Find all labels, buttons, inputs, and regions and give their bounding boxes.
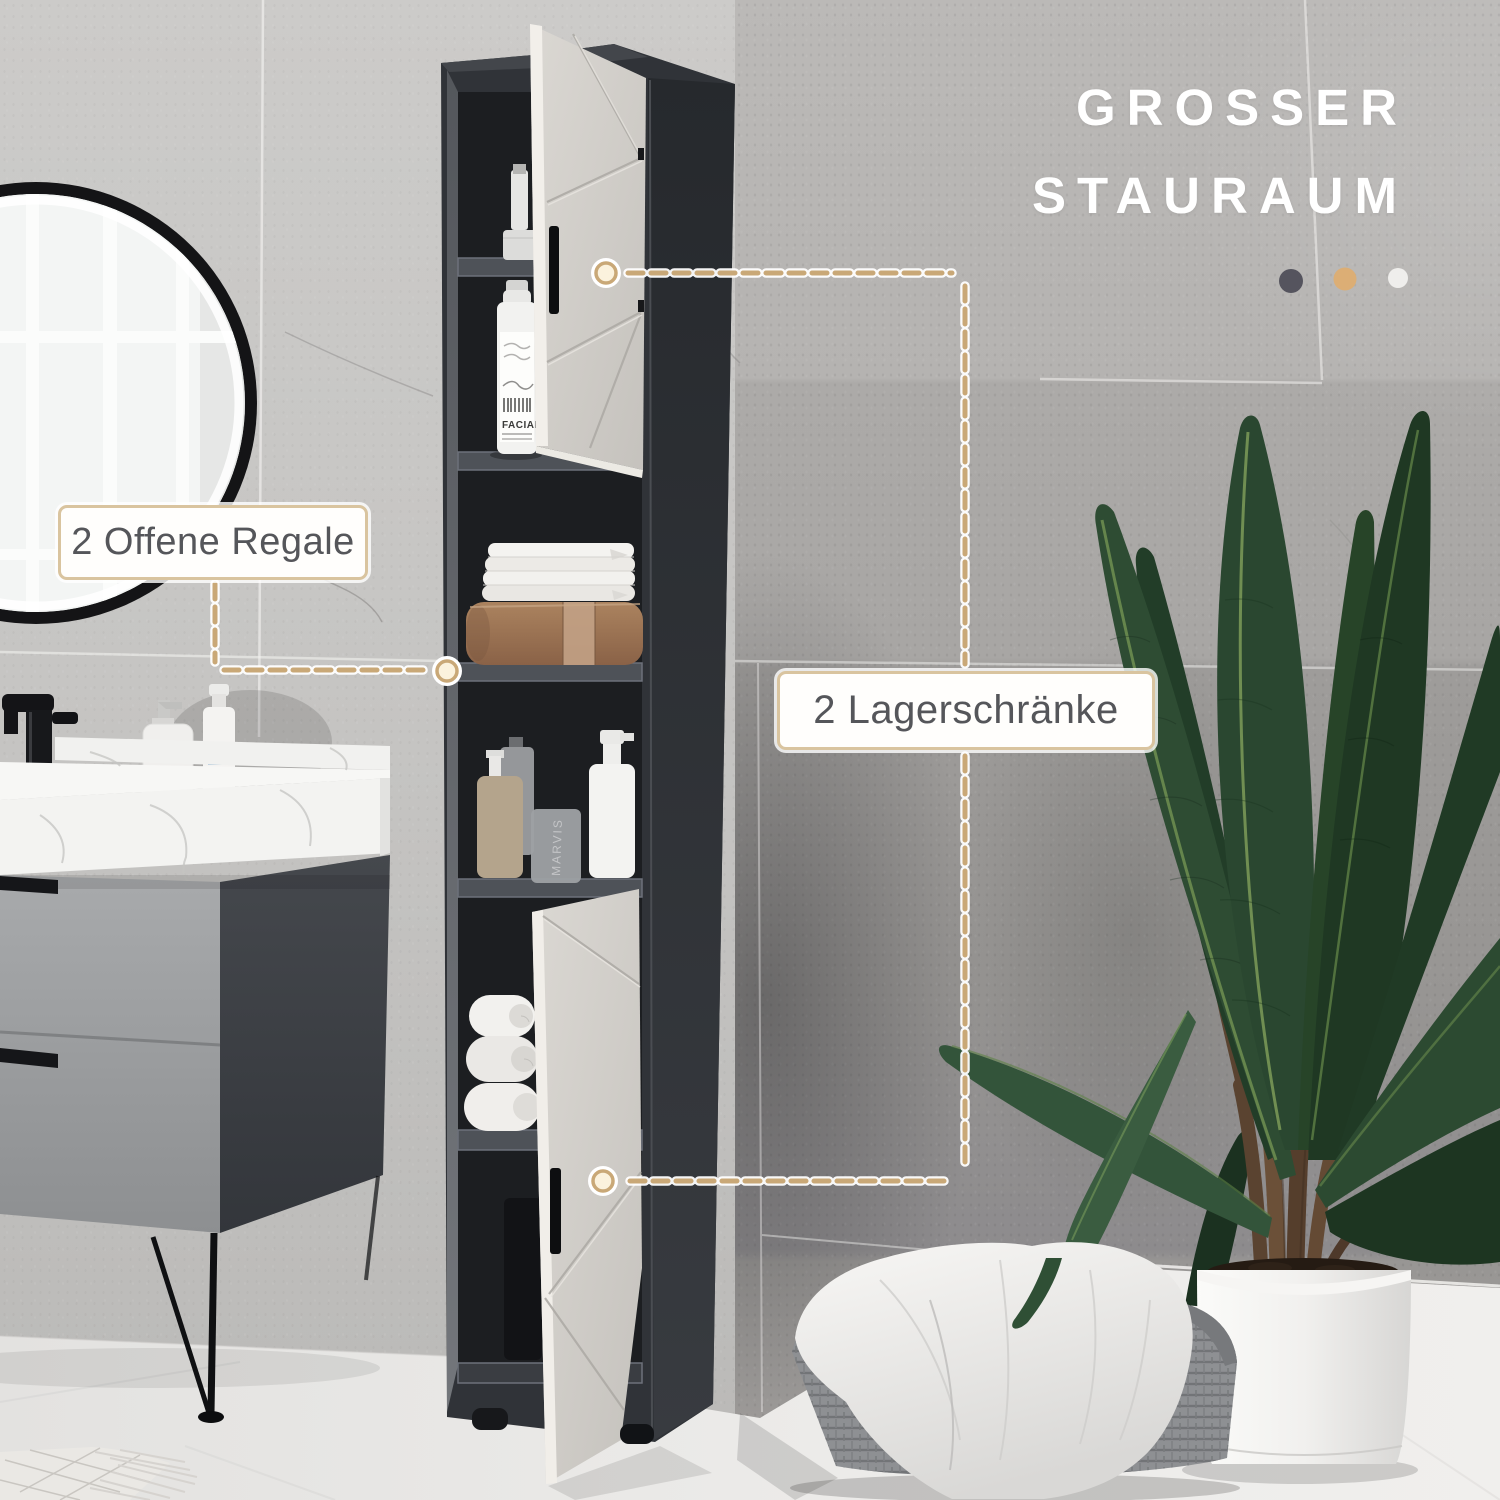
callout-label: 2 Lagerschränke [813, 688, 1118, 733]
swatch-anthracite [1279, 269, 1303, 293]
headline: GROSSER STAURAUM [1032, 64, 1408, 240]
callout-open-shelves: 2 Offene Regale [58, 505, 368, 580]
headline-line-2: STAURAUM [1032, 152, 1408, 240]
headline-line-1: GROSSER [1032, 64, 1408, 152]
color-swatch-dots [1279, 268, 1408, 294]
swatch-white [1388, 268, 1408, 288]
callout-marker [432, 258, 621, 1196]
swatch-sand [1334, 268, 1357, 291]
product-lifestyle-image: FACIAL [0, 0, 1500, 1500]
callout-label: 2 Offene Regale [71, 521, 355, 564]
callout-storage-cabinets: 2 Lagerschränke [777, 671, 1155, 750]
